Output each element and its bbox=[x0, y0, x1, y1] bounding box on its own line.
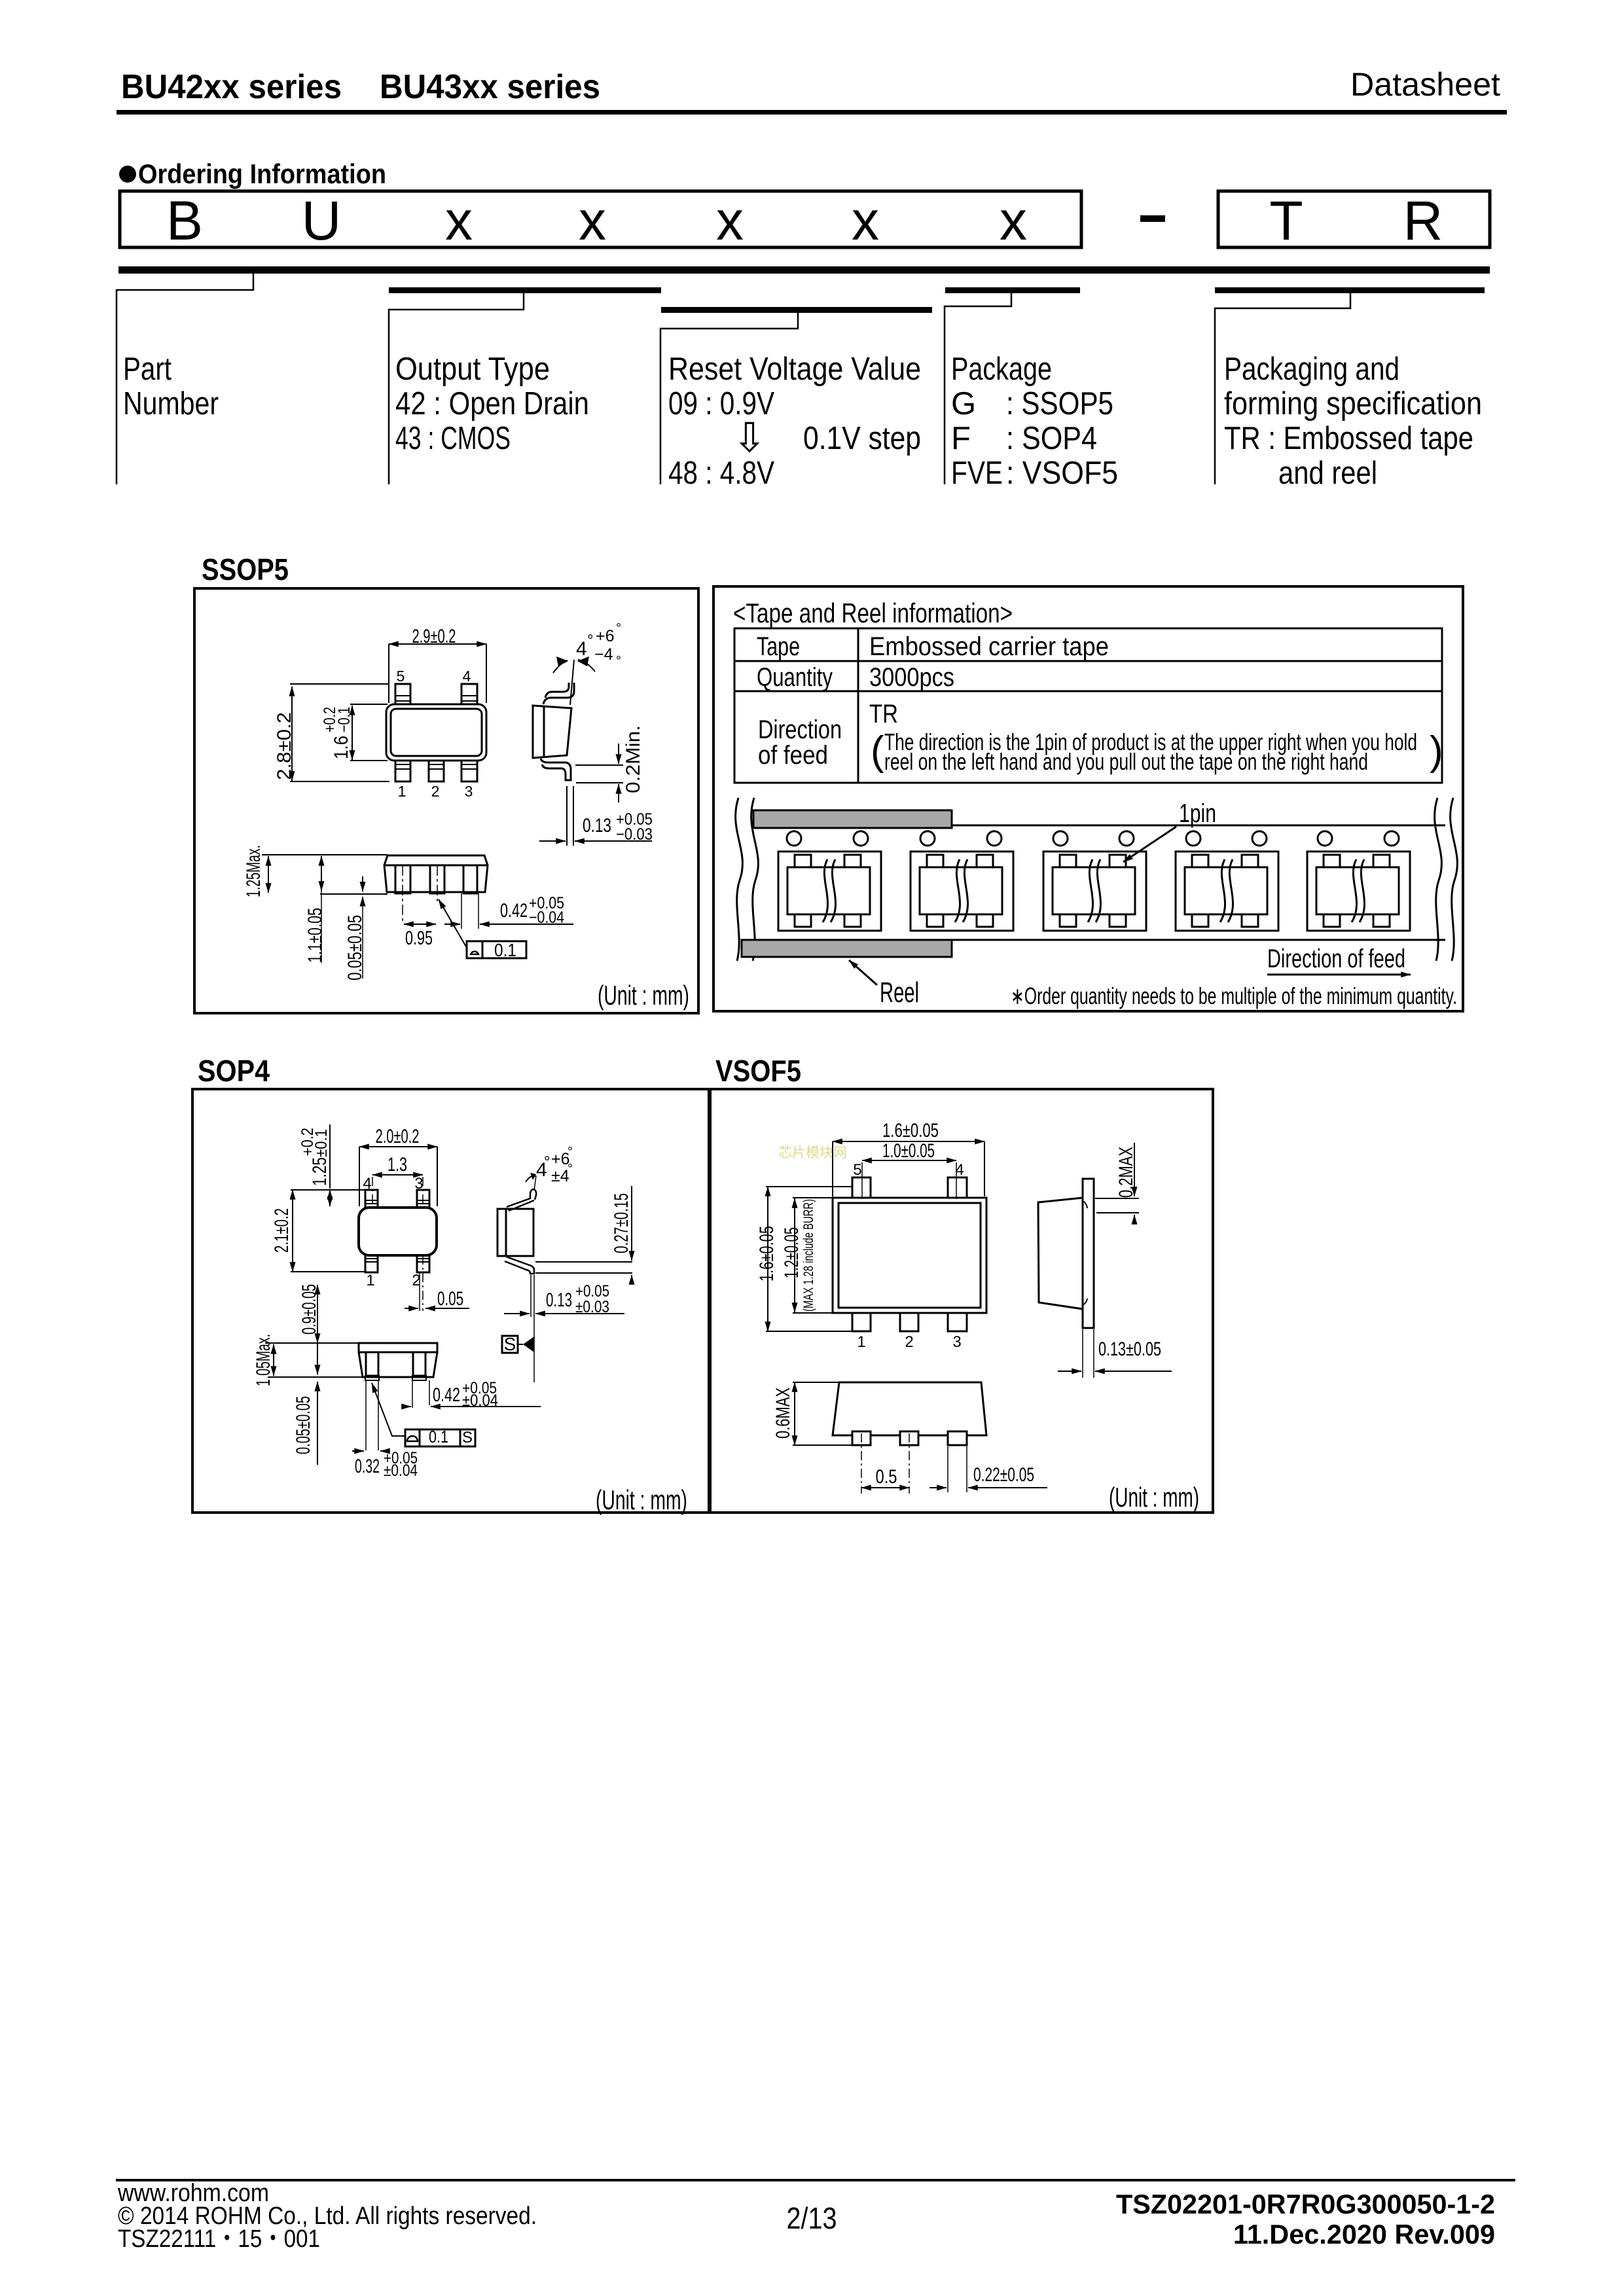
svg-text:1.0±0.05: 1.0±0.05 bbox=[882, 1140, 935, 1162]
svg-text:4: 4 bbox=[576, 638, 587, 660]
svg-text:1.6: 1.6 bbox=[331, 736, 352, 759]
svg-text:2: 2 bbox=[431, 783, 440, 800]
svg-text:0.42: 0.42 bbox=[433, 1384, 460, 1406]
svg-text:0.13±0.05: 0.13±0.05 bbox=[1098, 1338, 1161, 1360]
svg-text:芯片模块网: 芯片模块网 bbox=[778, 1145, 847, 1160]
svg-text:SSOP5: SSOP5 bbox=[202, 552, 289, 586]
svg-text:x: x bbox=[1000, 190, 1027, 251]
svg-text:U: U bbox=[302, 190, 342, 251]
svg-text:F: F bbox=[951, 421, 971, 456]
svg-text:: VSOF5: : VSOF5 bbox=[1006, 456, 1118, 491]
svg-text:∗Order quantity needs to be mu: ∗Order quantity needs to be multiple of … bbox=[1011, 982, 1457, 1009]
svg-text:S: S bbox=[504, 1334, 516, 1354]
svg-text:TR: TR bbox=[869, 700, 898, 728]
svg-text:(: ( bbox=[871, 728, 884, 774]
svg-text:0.95: 0.95 bbox=[405, 927, 433, 949]
svg-text:0.2Min.: 0.2Min. bbox=[623, 725, 644, 793]
svg-text:3: 3 bbox=[952, 1333, 961, 1351]
svg-text:3: 3 bbox=[414, 1175, 423, 1193]
svg-text:T: T bbox=[1269, 190, 1303, 251]
svg-text:11.Dec.2020 Rev.009: 11.Dec.2020 Rev.009 bbox=[1233, 2219, 1495, 2250]
svg-text:reel on the left hand and you: reel on the left hand and you pull out t… bbox=[884, 748, 1368, 775]
svg-text:°: ° bbox=[568, 1145, 573, 1159]
svg-text:5: 5 bbox=[397, 668, 405, 685]
svg-text:1.25: 1.25 bbox=[309, 1157, 331, 1186]
svg-text:Number: Number bbox=[123, 386, 219, 422]
svg-text:forming specification: forming specification bbox=[1224, 386, 1482, 422]
svg-text:43 : CMOS: 43 : CMOS bbox=[395, 421, 511, 456]
svg-text:G: G bbox=[951, 386, 976, 422]
svg-text:2.8±0.2: 2.8±0.2 bbox=[274, 712, 295, 780]
svg-text:0.22±0.05: 0.22±0.05 bbox=[973, 1464, 1034, 1486]
svg-text:−4: −4 bbox=[594, 645, 613, 664]
svg-text:0.1: 0.1 bbox=[494, 940, 516, 960]
svg-text:°: ° bbox=[568, 1162, 573, 1176]
svg-text:SOP4: SOP4 bbox=[198, 1054, 270, 1088]
svg-text:±0.1: ±0.1 bbox=[312, 1129, 331, 1157]
svg-text:Part: Part bbox=[123, 351, 171, 387]
svg-text:(Unit : mm): (Unit : mm) bbox=[596, 1484, 687, 1515]
svg-text:Direction of feed: Direction of feed bbox=[1267, 944, 1405, 973]
svg-text:3: 3 bbox=[465, 783, 473, 800]
svg-text:1.2±0.05: 1.2±0.05 bbox=[781, 1227, 803, 1278]
svg-text:1.25Max.: 1.25Max. bbox=[243, 845, 264, 897]
svg-text:0.13: 0.13 bbox=[546, 1289, 572, 1311]
svg-text:S: S bbox=[462, 1429, 473, 1446]
svg-text:°: ° bbox=[544, 1153, 550, 1171]
svg-text:0.1V step: 0.1V step bbox=[803, 421, 921, 456]
svg-text:1: 1 bbox=[366, 1272, 374, 1289]
svg-text:0.9±0.05: 0.9±0.05 bbox=[298, 1284, 320, 1335]
svg-text:1.05Max.: 1.05Max. bbox=[253, 1334, 274, 1386]
svg-text:5: 5 bbox=[853, 1161, 861, 1179]
svg-text:Tape: Tape bbox=[757, 632, 800, 661]
svg-text:: SOP4: : SOP4 bbox=[1006, 421, 1097, 456]
svg-text:FVE: FVE bbox=[951, 456, 1003, 491]
svg-text:0.05±0.05: 0.05±0.05 bbox=[293, 1396, 314, 1454]
svg-text:Datasheet: Datasheet bbox=[1350, 66, 1500, 103]
svg-text:(Unit : mm): (Unit : mm) bbox=[1109, 1482, 1199, 1513]
svg-text:1.6±0.05: 1.6±0.05 bbox=[756, 1226, 778, 1282]
svg-text:Ordering Information: Ordering Information bbox=[138, 158, 386, 189]
svg-text:48 : 4.8V: 48 : 4.8V bbox=[668, 456, 774, 491]
svg-text:3000pcs: 3000pcs bbox=[869, 663, 954, 692]
svg-text:2/13: 2/13 bbox=[787, 2201, 837, 2235]
svg-text:Quantity: Quantity bbox=[757, 663, 833, 692]
svg-text:4: 4 bbox=[955, 1161, 964, 1179]
svg-text:TR : Embossed tape: TR : Embossed tape bbox=[1224, 421, 1473, 456]
svg-text:±0.04: ±0.04 bbox=[384, 1462, 418, 1480]
svg-text:0.5: 0.5 bbox=[876, 1466, 897, 1488]
svg-text:−0.1: −0.1 bbox=[335, 707, 353, 732]
svg-text:2.0±0.2: 2.0±0.2 bbox=[376, 1126, 420, 1147]
svg-text:0.32: 0.32 bbox=[355, 1456, 380, 1477]
svg-text:x: x bbox=[445, 190, 473, 251]
svg-text:(Unit : mm): (Unit : mm) bbox=[598, 980, 689, 1011]
svg-text:0.13: 0.13 bbox=[583, 815, 611, 836]
svg-text:and reel: and reel bbox=[1278, 456, 1377, 491]
svg-text:°: ° bbox=[587, 632, 594, 649]
svg-text:°: ° bbox=[616, 654, 621, 668]
svg-text:TSZ22111・15・001: TSZ22111・15・001 bbox=[118, 2225, 320, 2253]
svg-text:⇩: ⇩ bbox=[732, 416, 767, 461]
svg-text:0.05±0.05: 0.05±0.05 bbox=[344, 915, 366, 980]
svg-text:1pin: 1pin bbox=[1179, 799, 1216, 828]
svg-text:TSZ02201-0R7R0G300050-1-2: TSZ02201-0R7R0G300050-1-2 bbox=[1116, 2189, 1495, 2219]
svg-text:0.05: 0.05 bbox=[437, 1288, 463, 1310]
svg-text:1.1±0.05: 1.1±0.05 bbox=[304, 908, 326, 963]
svg-text:±4: ±4 bbox=[551, 1167, 569, 1185]
svg-text:1: 1 bbox=[857, 1333, 865, 1351]
svg-text:Reel: Reel bbox=[880, 977, 919, 1009]
svg-text:±0.04: ±0.04 bbox=[462, 1391, 498, 1410]
svg-text:(MAX 1.28 include BURR): (MAX 1.28 include BURR) bbox=[801, 1199, 816, 1312]
svg-text:Packaging and: Packaging and bbox=[1224, 351, 1399, 387]
svg-text:°: ° bbox=[616, 621, 621, 636]
svg-text:0.42: 0.42 bbox=[500, 900, 528, 922]
svg-text:x: x bbox=[579, 190, 606, 251]
svg-text:B: B bbox=[166, 190, 203, 251]
svg-text:−0.04: −0.04 bbox=[529, 908, 564, 927]
svg-text:<Tape and Reel information>: <Tape and Reel information> bbox=[733, 598, 1013, 628]
svg-text:1.6±0.05: 1.6±0.05 bbox=[882, 1120, 939, 1141]
svg-text:: SSOP5: : SSOP5 bbox=[1006, 386, 1113, 422]
svg-text:0.6MAX: 0.6MAX bbox=[772, 1388, 794, 1439]
svg-text:42 : Open Drain: 42 : Open Drain bbox=[395, 386, 589, 422]
svg-text:VSOF5: VSOF5 bbox=[715, 1054, 801, 1088]
svg-text:0.27±0.15: 0.27±0.15 bbox=[611, 1193, 632, 1253]
svg-text:1: 1 bbox=[398, 783, 406, 800]
svg-text:2: 2 bbox=[905, 1333, 913, 1351]
svg-text:R: R bbox=[1403, 190, 1443, 251]
svg-text:Embossed carrier tape: Embossed carrier tape bbox=[869, 632, 1109, 661]
svg-text:Reset Voltage Value: Reset Voltage Value bbox=[668, 351, 921, 387]
svg-text:Package: Package bbox=[951, 351, 1052, 387]
svg-text:): ) bbox=[1430, 728, 1443, 774]
svg-text:Output Type: Output Type bbox=[395, 351, 550, 387]
svg-text:BU43xx series: BU43xx series bbox=[380, 68, 600, 106]
svg-text:1.3: 1.3 bbox=[388, 1154, 407, 1175]
svg-text:+6: +6 bbox=[596, 627, 615, 645]
svg-text:x: x bbox=[716, 190, 744, 251]
svg-text:BU42xx series: BU42xx series bbox=[121, 68, 342, 106]
svg-text:x: x bbox=[852, 190, 879, 251]
svg-text:2.1±0.2: 2.1±0.2 bbox=[271, 1208, 293, 1253]
svg-text:of feed: of feed bbox=[758, 741, 828, 770]
svg-text:4: 4 bbox=[463, 668, 471, 685]
svg-text:Direction: Direction bbox=[758, 715, 842, 744]
svg-text:0.1: 0.1 bbox=[429, 1427, 448, 1446]
